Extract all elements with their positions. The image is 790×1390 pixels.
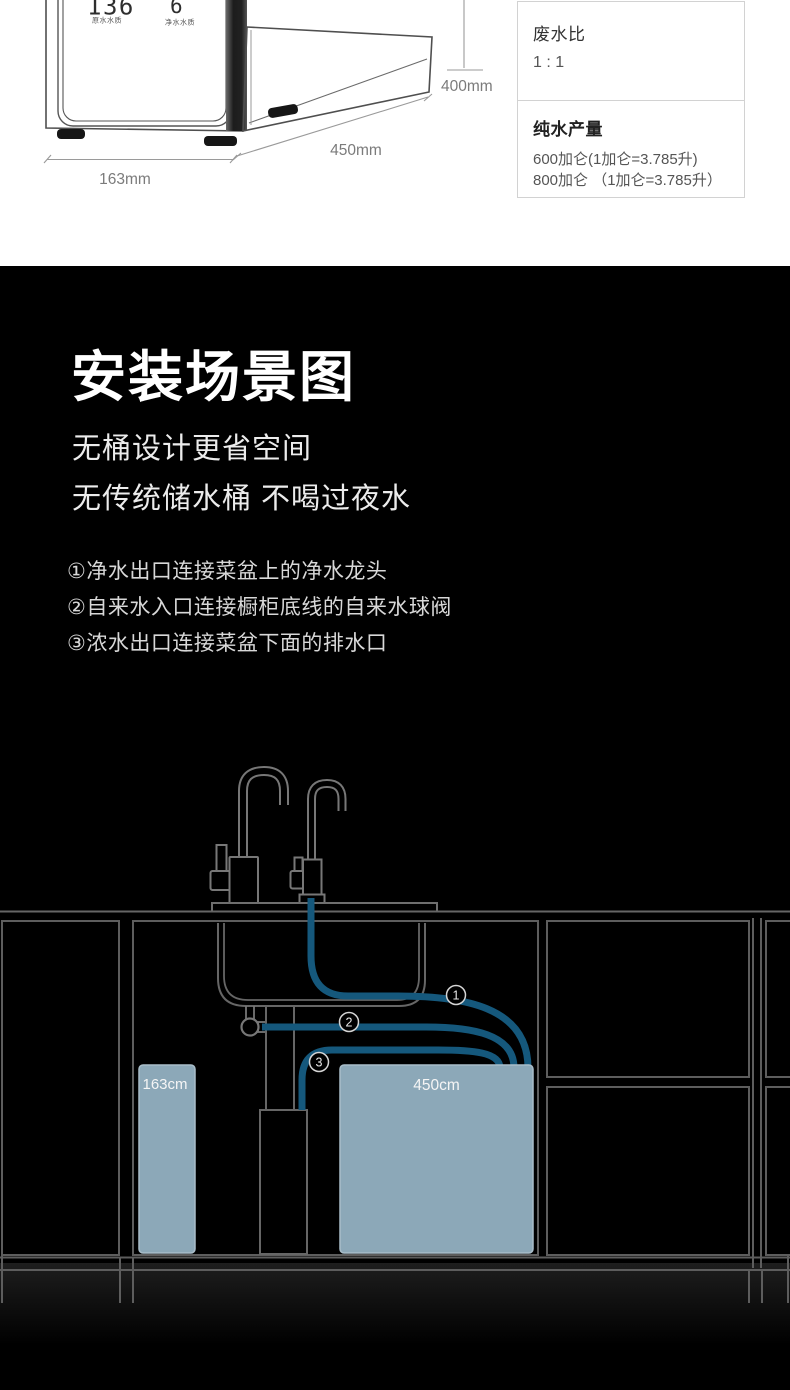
faucet-small: [291, 784, 343, 904]
display-pure-label: 净水水质: [165, 18, 195, 27]
product-line-drawing: 136 6 原水水质 净水水质 163mm 450mm 4: [0, 0, 510, 240]
scene-subtitle-1: 无桶设计更省空间: [72, 425, 312, 467]
scene-subtitle-2: 无传统储水桶 不喝过夜水: [72, 475, 411, 517]
unit-foot: [204, 136, 237, 146]
scene-step-1: ①净水出口连接菜盆上的净水龙头: [67, 554, 452, 590]
faucet-large-handle: [211, 871, 232, 890]
sink-platform-rim: [212, 903, 437, 911]
unit-foot: [267, 103, 298, 118]
faucet-small-body: [303, 860, 322, 897]
faucet-large-body: [230, 857, 259, 903]
spec-table: 废水比 1 : 1 纯水产量 600加仑(1加仑=3.785升) 800加仑 （…: [517, 1, 745, 198]
spec-value: 1 : 1: [533, 54, 730, 72]
spec-label: 废水比: [533, 20, 730, 45]
unit-front-panel-outer: [58, 0, 231, 126]
spec-label: 纯水产量: [533, 115, 730, 140]
product-detail-page: 136 6 原水水质 净水水质 163mm 450mm 4: [0, 0, 790, 1390]
purifier-space-label: 450cm: [413, 1077, 460, 1094]
floor-shadow: [0, 1263, 790, 1345]
dim-width: [44, 155, 237, 163]
installation-diagram: 163cm 450cm 1 2 3: [0, 755, 790, 1390]
unit-foot: [57, 129, 85, 139]
dim-depth-label: 450mm: [330, 142, 382, 159]
ball-valve: [242, 1019, 259, 1036]
spec-row-pure-output: 纯水产量 600加仑(1加仑=3.785升) 800加仑 （1加仑=3.785升…: [518, 100, 744, 197]
scene-step-list: ①净水出口连接菜盆上的净水龙头 ②自来水入口连接橱柜底线的自来水球阀 ③浓水出口…: [67, 554, 452, 662]
product-spec-section: 136 6 原水水质 净水水质 163mm 450mm 4: [0, 0, 790, 266]
display-pure-value: 6: [170, 0, 183, 18]
faucet-large-handle-stem: [217, 845, 227, 873]
left-space-label: 163cm: [143, 1076, 188, 1093]
marker-1: 1: [453, 989, 460, 1003]
drain-standpipe: [260, 1110, 307, 1254]
dim-width-label: 163mm: [99, 171, 151, 188]
spec-value-line: 800加仑 （1加仑=3.785升）: [533, 170, 730, 191]
dim-height-label: 400mm: [441, 78, 493, 95]
drain-pipe: [260, 1006, 307, 1254]
left-space-box: [139, 1065, 195, 1253]
display-raw-label: 原水水质: [92, 16, 122, 25]
installation-scene-section: 安装场景图 无桶设计更省空间 无传统储水桶 不喝过夜水 ①净水出口连接菜盆上的净…: [0, 266, 790, 1390]
drain-assembly: [242, 1006, 267, 1036]
spec-row-waste-ratio: 废水比 1 : 1: [518, 2, 744, 100]
faucet-large: [211, 771, 285, 903]
scene-step-3: ③浓水出口连接菜盆下面的排水口: [67, 626, 452, 662]
marker-2: 2: [346, 1016, 353, 1030]
scene-step-2: ②自来水入口连接橱柜底线的自来水球阀: [67, 590, 452, 626]
spec-value-line: 600加仑(1加仑=3.785升): [533, 149, 730, 170]
scene-title: 安装场景图: [71, 332, 356, 412]
unit-front-outline: [46, 0, 243, 131]
dim-height: [447, 0, 483, 70]
marker-3: 3: [316, 1056, 323, 1070]
